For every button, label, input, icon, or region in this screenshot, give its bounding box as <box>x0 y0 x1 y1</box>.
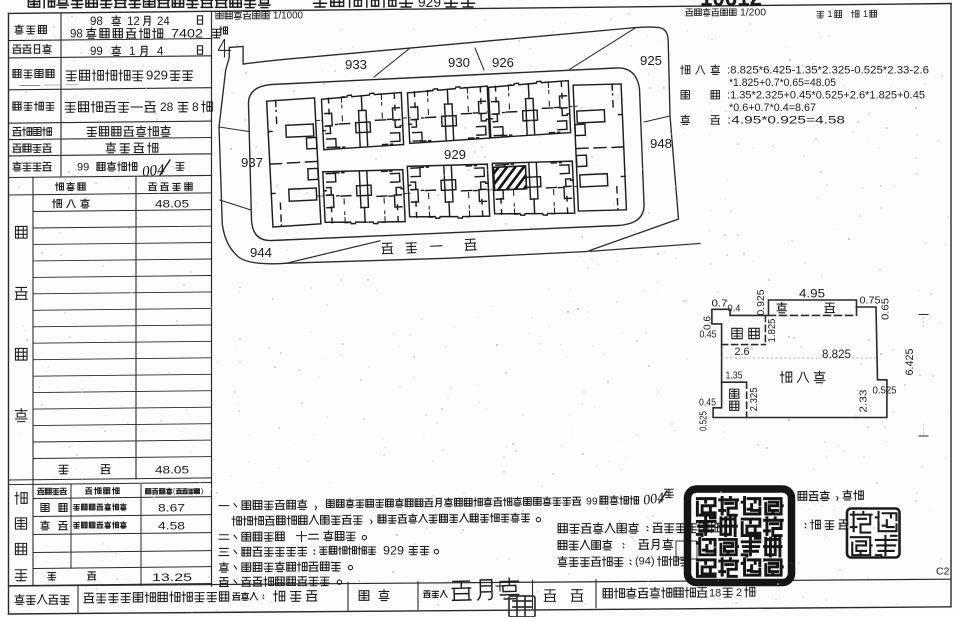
svg-text:1: 1 <box>828 9 833 19</box>
svg-text:2.6: 2.6 <box>735 346 750 358</box>
svg-text:(94): (94) <box>635 556 655 568</box>
svg-text:1/200: 1/200 <box>740 8 766 19</box>
svg-text:1: 1 <box>863 9 868 19</box>
svg-text:929: 929 <box>383 546 404 558</box>
svg-text:0.65: 0.65 <box>880 298 892 320</box>
svg-text:2: 2 <box>736 587 742 599</box>
svg-text:98: 98 <box>90 16 103 28</box>
svg-text:2.33: 2.33 <box>857 389 869 412</box>
svg-text:7402: 7402 <box>171 29 203 41</box>
svg-text:1: 1 <box>129 46 135 58</box>
svg-text:929: 929 <box>418 0 441 11</box>
svg-text:28: 28 <box>160 100 174 114</box>
svg-text:4: 4 <box>157 46 164 58</box>
svg-text:8: 8 <box>192 100 199 114</box>
svg-text:): ) <box>201 489 203 496</box>
svg-text:929: 929 <box>146 69 168 83</box>
svg-text:8.67: 8.67 <box>158 503 185 515</box>
svg-text:933: 933 <box>345 58 367 72</box>
svg-text:18: 18 <box>709 588 721 600</box>
svg-text:13.25: 13.25 <box>152 572 192 584</box>
svg-text:6.425: 6.425 <box>904 349 916 376</box>
svg-text:0.7: 0.7 <box>712 298 728 310</box>
svg-text::1.35*2.325+0.45*0.525+2.6*1.8: :1.35*2.325+0.45*0.525+2.6*1.825+0.45 <box>727 90 925 102</box>
svg-text:948: 948 <box>650 137 672 151</box>
svg-text:1/1000: 1/1000 <box>273 10 303 22</box>
svg-text:929: 929 <box>444 148 466 162</box>
svg-text:944: 944 <box>250 246 272 260</box>
svg-text:24: 24 <box>157 16 170 28</box>
svg-text:0.525: 0.525 <box>873 385 897 397</box>
svg-text:8.825: 8.825 <box>822 347 851 361</box>
svg-text:48.05: 48.05 <box>155 465 189 477</box>
svg-text:99: 99 <box>586 496 598 508</box>
svg-text:1.825: 1.825 <box>766 318 778 342</box>
svg-text:*0.6+0.7*0.4=8.67: *0.6+0.7*0.4=8.67 <box>729 102 816 114</box>
svg-text:0.45: 0.45 <box>700 329 717 341</box>
svg-text::8.825*6.425-1.35*2.325-0.525*: :8.825*6.425-1.35*2.325-0.525*2.33-2.6 <box>727 65 929 77</box>
svg-text:930: 930 <box>448 56 470 70</box>
svg-text:99: 99 <box>77 162 89 174</box>
svg-text:12: 12 <box>127 16 140 28</box>
svg-text:2.325: 2.325 <box>748 387 760 411</box>
svg-text:926: 926 <box>492 56 514 70</box>
svg-text::4.95*0.925=4.58: :4.95*0.925=4.58 <box>727 115 845 127</box>
svg-text:4.58: 4.58 <box>158 521 185 533</box>
svg-text:98: 98 <box>70 29 83 41</box>
svg-text:1.35: 1.35 <box>726 370 743 382</box>
svg-text:99: 99 <box>90 46 103 58</box>
svg-text:C2: C2 <box>936 566 950 578</box>
svg-text:0.4: 0.4 <box>728 303 741 315</box>
svg-text:925: 925 <box>640 54 662 68</box>
svg-text:937: 937 <box>241 156 263 170</box>
svg-text:4.95: 4.95 <box>799 287 825 301</box>
svg-text:0.525: 0.525 <box>698 411 710 431</box>
svg-text:*1.825+0.7*0.65=48.05: *1.825+0.7*0.65=48.05 <box>729 77 836 89</box>
svg-text:0.925: 0.925 <box>755 289 767 315</box>
svg-text:48.05: 48.05 <box>155 199 189 211</box>
svg-text:0.45: 0.45 <box>699 397 716 409</box>
svg-text:0.75: 0.75 <box>860 295 881 307</box>
